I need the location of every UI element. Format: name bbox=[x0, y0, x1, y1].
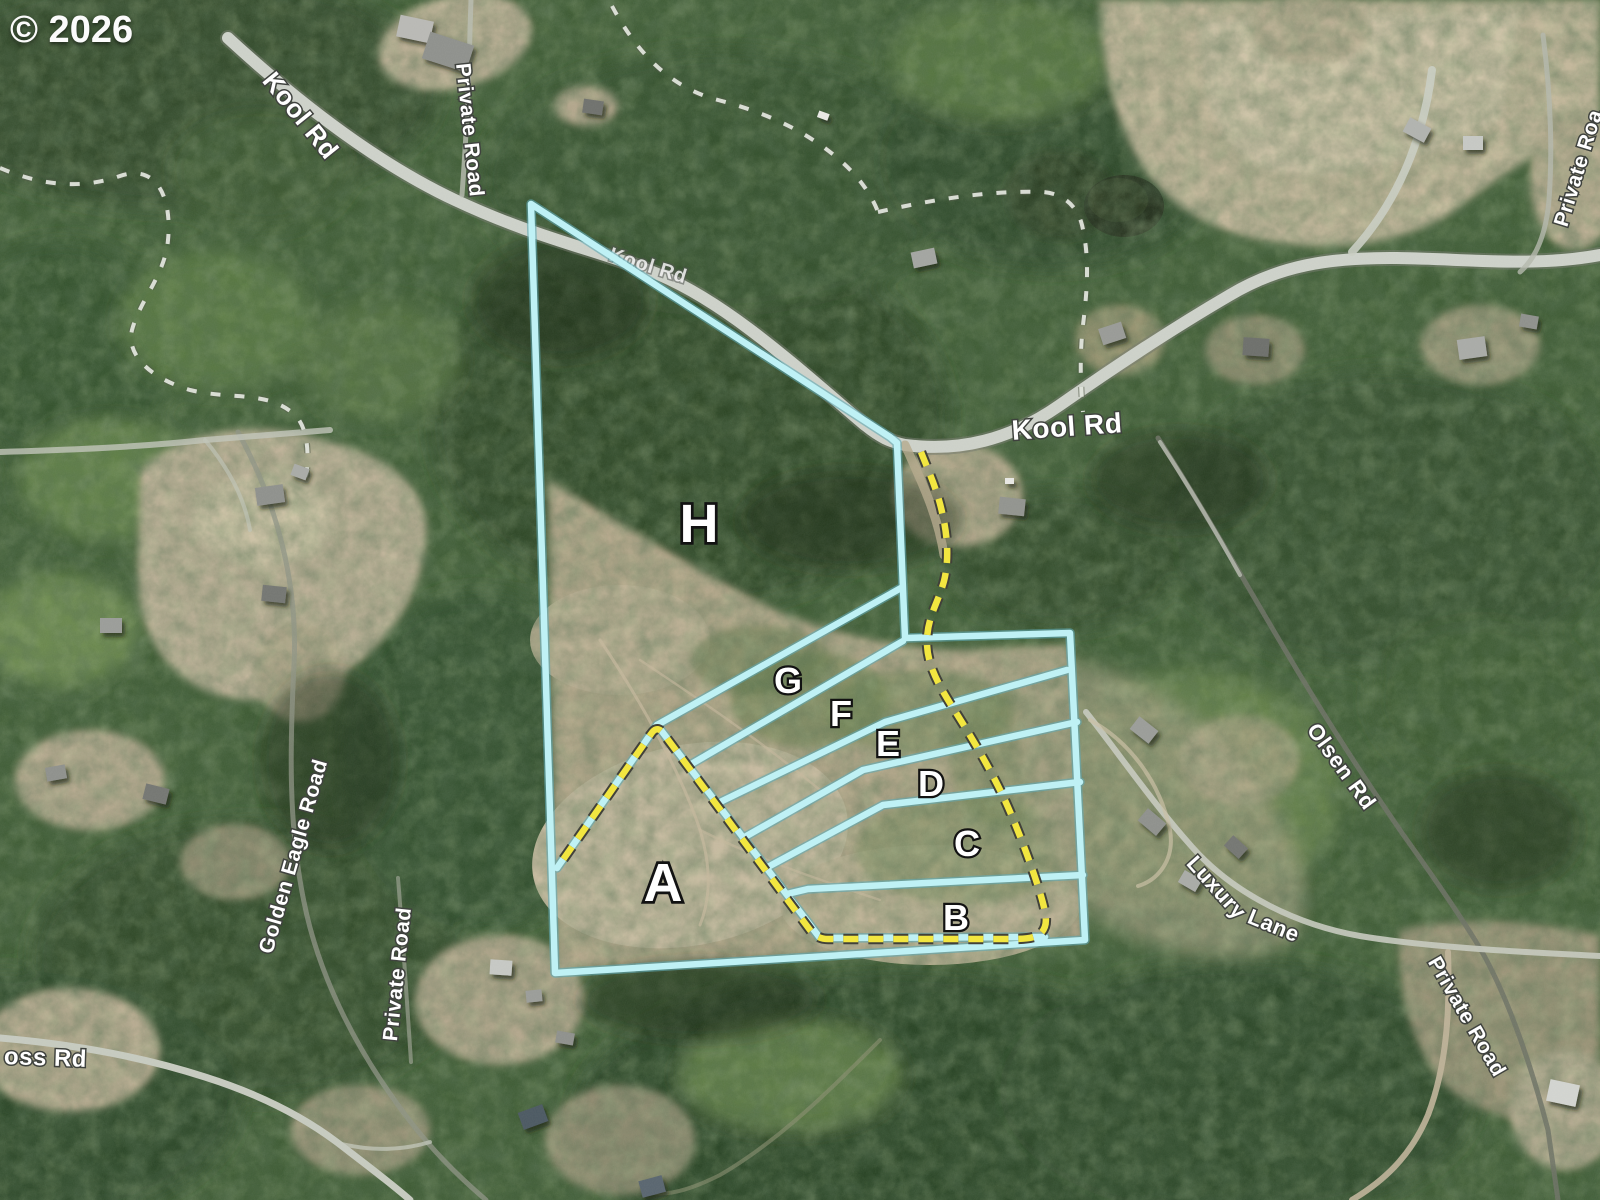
photo-grain bbox=[0, 0, 1600, 1200]
satellite-map-view[interactable]: Kool Rd Kool Rd Kool Rd Private Road Pri… bbox=[0, 0, 1600, 1200]
lot-label-f: F bbox=[830, 693, 852, 734]
copyright-watermark: © 2026 bbox=[10, 9, 133, 51]
oss-rd-label: oss Rd bbox=[4, 1043, 88, 1073]
lot-label-d: D bbox=[918, 763, 944, 804]
lot-label-b: B bbox=[943, 897, 969, 938]
lot-label-a: A bbox=[644, 853, 683, 913]
map-canvas[interactable]: Kool Rd Kool Rd Kool Rd Private Road Pri… bbox=[0, 0, 1600, 1200]
lot-label-e: E bbox=[876, 723, 900, 764]
lot-label-c: C bbox=[954, 823, 980, 864]
lot-label-h: H bbox=[680, 494, 719, 554]
lot-label-g: G bbox=[774, 660, 802, 701]
